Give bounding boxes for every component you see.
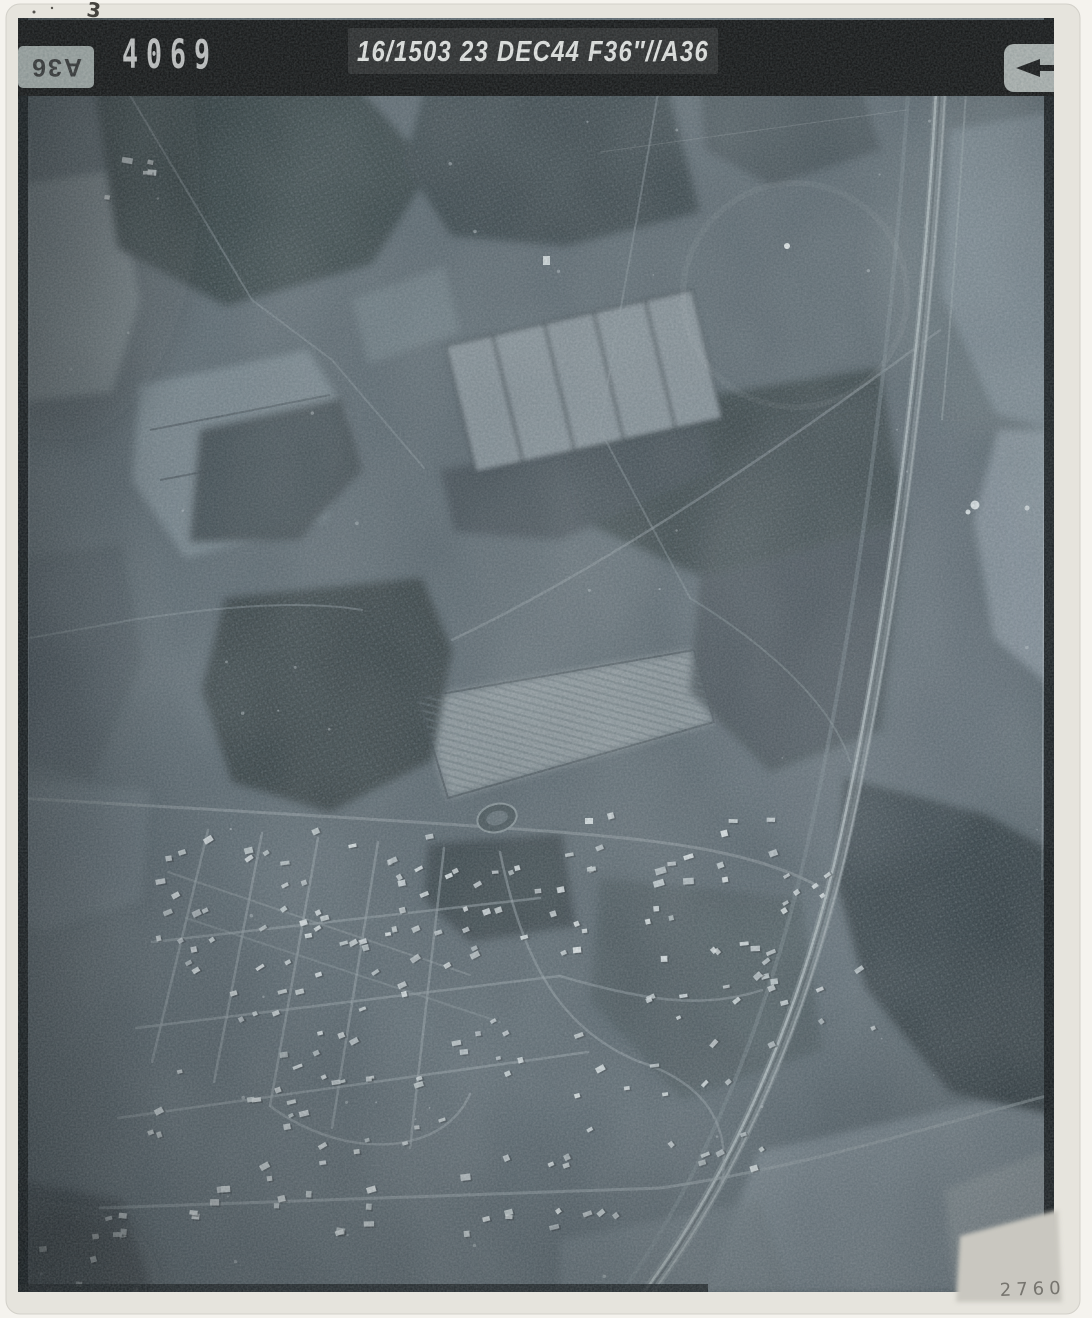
pencil-annotation: 2760: [999, 1278, 1066, 1301]
film-grain-dark: [18, 18, 1054, 1292]
scanned-photo: 4069 16/1503 23 DEC44 F36″//A36 A36 2760…: [0, 0, 1092, 1318]
aerial-photo: 4069 16/1503 23 DEC44 F36″//A36 A36: [0, 0, 1092, 1318]
ink-speck: [33, 11, 36, 14]
ink-speck: [51, 7, 53, 9]
